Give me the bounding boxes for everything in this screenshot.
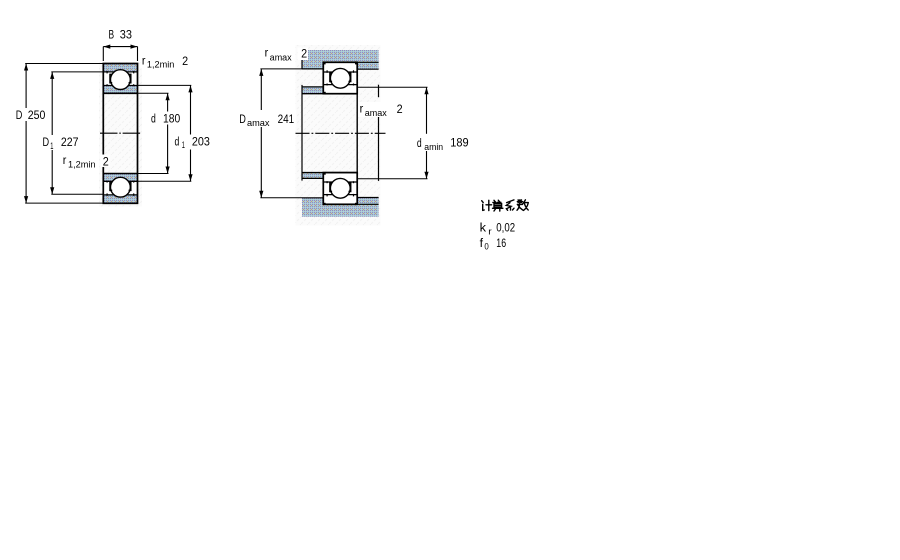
- svg-text:amax: amax: [365, 108, 388, 118]
- svg-text:amin: amin: [424, 142, 443, 152]
- svg-text:r: r: [488, 227, 491, 237]
- svg-text:33: 33: [120, 28, 132, 42]
- svg-text:k: k: [480, 221, 487, 235]
- svg-text:B: B: [109, 28, 115, 42]
- svg-text:r: r: [63, 153, 67, 167]
- svg-text:2: 2: [103, 154, 109, 168]
- svg-text:1,2min: 1,2min: [68, 160, 96, 170]
- svg-text:1: 1: [182, 140, 185, 150]
- svg-text:d: d: [175, 134, 180, 148]
- svg-text:203: 203: [192, 134, 210, 148]
- svg-text:180: 180: [163, 111, 180, 125]
- svg-text:D: D: [43, 135, 50, 149]
- svg-text:amax: amax: [270, 52, 293, 62]
- svg-text:D: D: [239, 112, 246, 126]
- svg-text:227: 227: [61, 135, 79, 149]
- svg-text:r: r: [142, 54, 146, 68]
- svg-text:241: 241: [278, 112, 295, 126]
- svg-text:2: 2: [182, 54, 188, 68]
- svg-text:d: d: [417, 136, 422, 150]
- svg-text:0: 0: [484, 242, 488, 252]
- svg-text:250: 250: [28, 108, 46, 122]
- svg-text:amax: amax: [247, 118, 270, 128]
- svg-text:1,2min: 1,2min: [147, 60, 175, 70]
- svg-text:189: 189: [450, 135, 469, 149]
- svg-text:2: 2: [301, 47, 307, 61]
- svg-text:2: 2: [397, 102, 403, 116]
- svg-text:0,02: 0,02: [496, 221, 515, 235]
- svg-text:16: 16: [496, 236, 506, 250]
- svg-text:r: r: [265, 46, 269, 60]
- svg-text:1: 1: [50, 141, 53, 151]
- svg-text:d: d: [151, 111, 156, 125]
- svg-text:D: D: [16, 108, 23, 122]
- svg-text:r: r: [360, 102, 364, 116]
